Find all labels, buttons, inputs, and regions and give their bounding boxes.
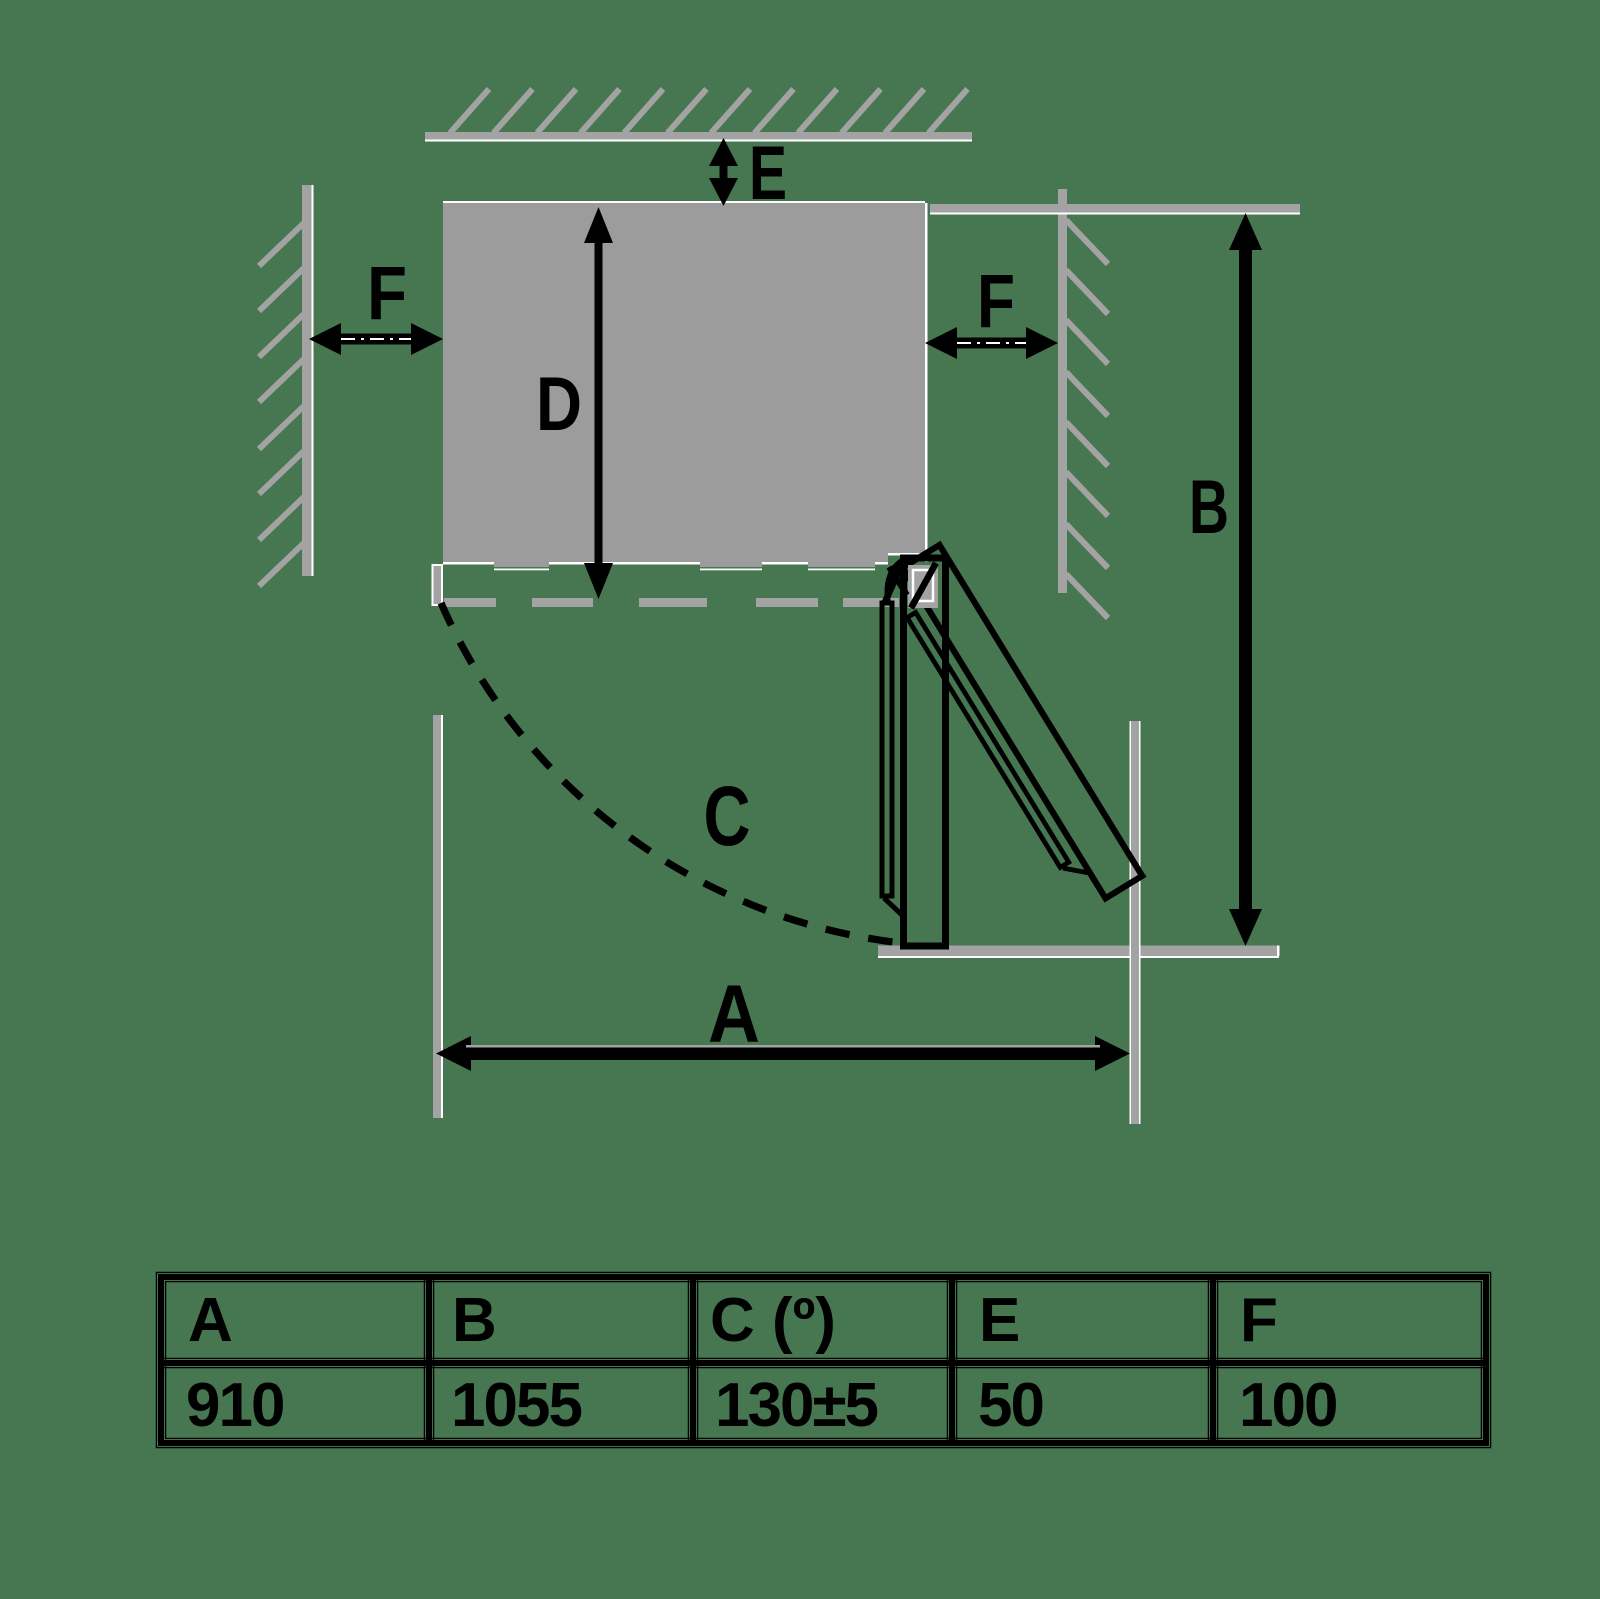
- svg-text:910: 910: [186, 1371, 283, 1440]
- svg-text:F: F: [1240, 1286, 1278, 1355]
- svg-text:F: F: [367, 251, 407, 336]
- svg-text:C (º): C (º): [710, 1286, 836, 1355]
- svg-text:F: F: [977, 259, 1015, 344]
- svg-text:1055: 1055: [451, 1371, 581, 1440]
- svg-text:130±5: 130±5: [715, 1371, 877, 1440]
- svg-text:50: 50: [978, 1371, 1043, 1440]
- svg-text:A: A: [708, 969, 760, 1060]
- svg-text:B: B: [452, 1286, 497, 1355]
- svg-text:A: A: [188, 1286, 233, 1355]
- svg-text:100: 100: [1239, 1371, 1336, 1440]
- svg-text:E: E: [979, 1286, 1020, 1355]
- svg-text:B: B: [1189, 465, 1229, 550]
- svg-text:E: E: [749, 131, 787, 216]
- svg-text:D: D: [536, 362, 582, 447]
- svg-text:C: C: [704, 769, 751, 863]
